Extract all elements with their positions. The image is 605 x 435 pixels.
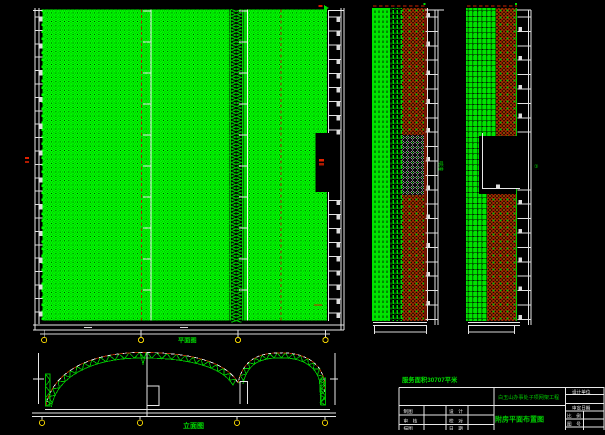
svg-text:审定日期: 审定日期 [572, 405, 591, 412]
svg-text:平面图: 平面图 [178, 337, 197, 345]
svg-text:设 计: 设 计 [449, 408, 463, 415]
svg-text:描图: 描图 [404, 425, 414, 430]
svg-text:立面图: 立面图 [183, 421, 204, 430]
svg-text:服务面积30707平米: 服务面积30707平米 [402, 375, 458, 384]
svg-text:审 核: 审 核 [404, 418, 418, 425]
svg-text:喘灌: 喘灌 [437, 161, 444, 171]
svg-text:制图: 制图 [404, 408, 414, 415]
svg-text:设计单位: 设计单位 [572, 389, 591, 396]
svg-text:白玉山办事处子项网架工程: 白玉山办事处子项网架工程 [498, 394, 559, 401]
svg-text:比 例: 比 例 [567, 413, 581, 420]
svg-text:附房平面布置图: 附房平面布置图 [495, 415, 544, 424]
svg-text:校 对: 校 对 [449, 418, 463, 425]
svg-text:③: ③ [534, 164, 539, 170]
svg-text:日 期: 日 期 [449, 426, 463, 430]
